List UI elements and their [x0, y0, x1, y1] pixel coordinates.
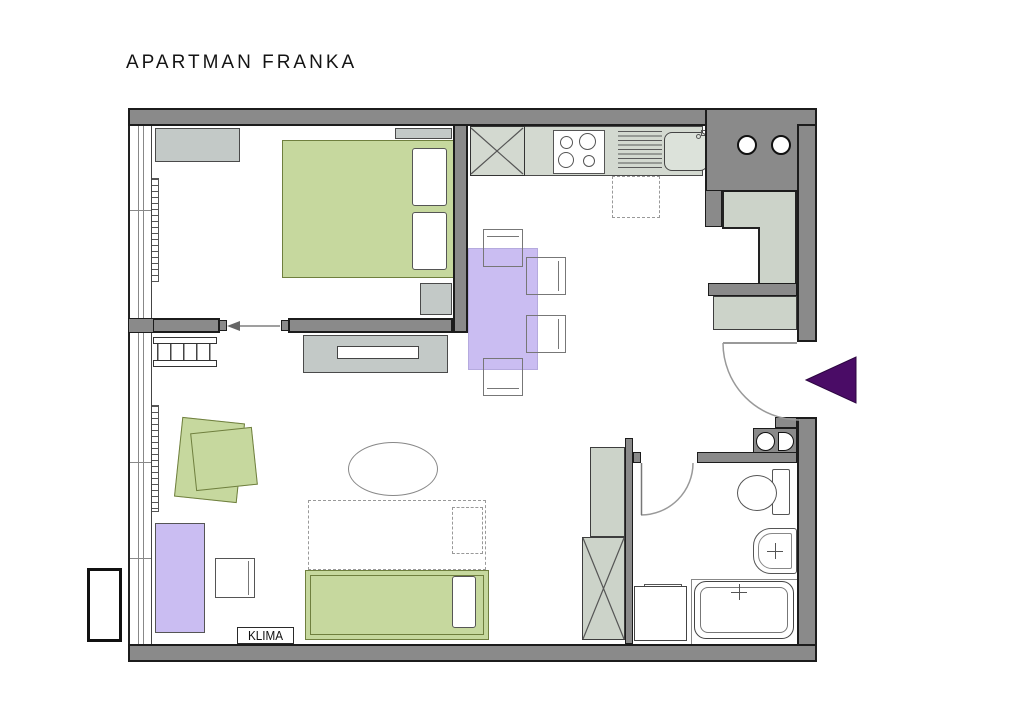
window-band [128, 126, 152, 644]
right-wall-lower [797, 417, 817, 646]
pipe-icon [756, 432, 775, 451]
bottom-wall [128, 644, 817, 662]
vent-shaft-icon [771, 135, 791, 155]
nightstand [420, 283, 452, 315]
bedroom-kitchen-wall [453, 124, 468, 333]
sofa-pillow [452, 576, 476, 628]
outdoor-unit [87, 568, 122, 642]
window-mid-stub [128, 318, 154, 333]
toilet-icon [737, 475, 777, 511]
desk [155, 523, 205, 633]
entrance-door-arc [723, 343, 800, 420]
bed-pillow [412, 148, 447, 206]
entry-closet-lower [713, 296, 797, 330]
bathroom-top-wall [697, 452, 797, 463]
dining-chair [483, 358, 523, 396]
page-title: APARTMAN FRANKA [126, 52, 357, 74]
bath-door-jamb [633, 452, 641, 463]
klima-box: KLIMA [237, 627, 294, 644]
wardrobe [155, 128, 240, 162]
armchair-seat [190, 427, 258, 491]
entry-partition-wall [708, 283, 797, 296]
entry-closet-notch [722, 227, 760, 285]
desk-chair [215, 558, 255, 598]
tall-cabinet [590, 447, 625, 537]
washbasin-icon [753, 528, 797, 574]
door-jamb [219, 320, 227, 331]
tv-icon [337, 346, 419, 359]
tub-platform-line [692, 579, 797, 580]
wall-stub [775, 417, 797, 428]
sofa-pullout-pillow-dashed [452, 507, 483, 554]
washing-machine [634, 586, 687, 641]
fridge-cabinet [470, 126, 525, 176]
sliding-door-arrow-icon [227, 321, 240, 331]
floor-plan: APARTMAN FRANKA [0, 0, 1024, 724]
partition-wall-right [288, 318, 453, 333]
stove-icon [553, 130, 605, 174]
hall-radiator-rungs [157, 344, 213, 360]
right-wall-upper [797, 124, 817, 342]
klima-label: KLIMA [248, 628, 283, 643]
door-jamb [281, 320, 289, 331]
coffee-table [348, 442, 438, 496]
bathroom-left-wall [625, 438, 633, 644]
wall-shelf [395, 128, 452, 139]
dashed-upper-cabinet [612, 176, 660, 218]
bathroom-door-arc [641, 463, 693, 515]
tub-platform-line [691, 579, 692, 644]
entry-wall-strip [705, 190, 722, 227]
x-wardrobe [582, 537, 625, 640]
bed-pillow [412, 212, 447, 270]
hall-radiator-bottom [153, 360, 217, 367]
kitchen-sink-icon [664, 132, 708, 171]
hall-radiator-top [153, 337, 217, 344]
dining-chair [526, 257, 566, 295]
entrance-door-leaf [723, 342, 797, 344]
bathtub-icon [694, 581, 794, 639]
drainboard [618, 131, 662, 171]
vent-shaft-icon [737, 135, 757, 155]
entrance-arrow-icon [806, 357, 856, 403]
dining-chair [526, 315, 566, 353]
dining-chair [483, 229, 523, 267]
